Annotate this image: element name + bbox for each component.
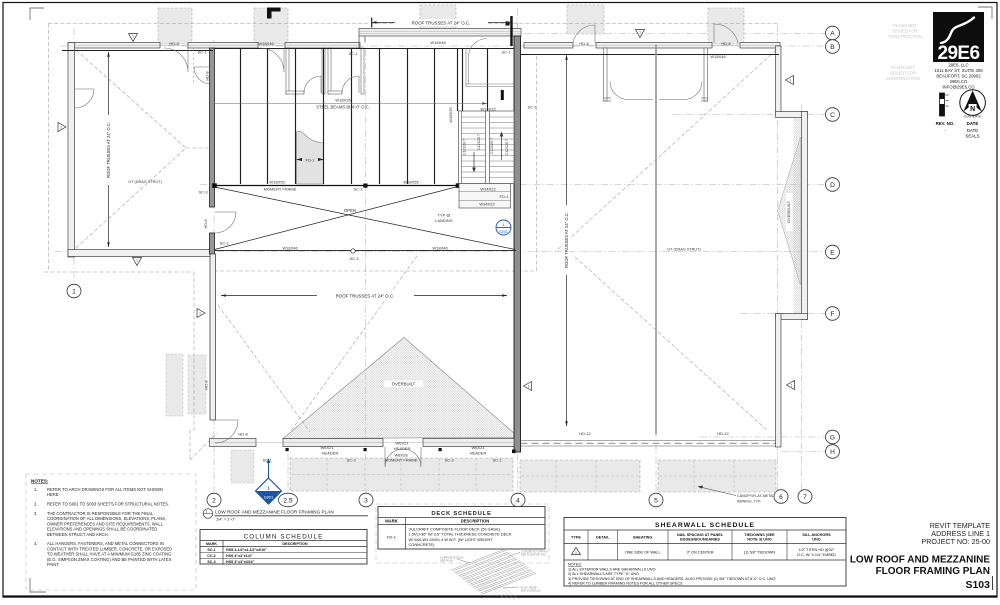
svg-text:SC-3: SC-3: [198, 190, 208, 195]
svg-text:S201: S201: [499, 230, 507, 234]
svg-text:HD-8: HD-8: [204, 380, 209, 390]
svg-text:W18X46: W18X46: [710, 54, 726, 59]
svg-text:B: B: [830, 44, 835, 51]
svg-text:HD-8: HD-8: [205, 71, 210, 81]
svg-text:SC-1: SC-1: [197, 50, 207, 55]
svg-text:LOW ROOF AND MEZZANINE FLOOR F: LOW ROOF AND MEZZANINE FLOOR FRAMING PLA…: [215, 510, 334, 515]
svg-text:ISSUED FOR: ISSUED FOR: [892, 29, 918, 34]
svg-text:C12X20.7: C12X20.7: [505, 139, 509, 155]
svg-text:DETAIL: DETAIL: [596, 536, 610, 540]
svg-text:1: 1: [132, 35, 134, 39]
svg-text:UNO: UNO: [812, 538, 820, 542]
svg-text:S301: S301: [264, 495, 274, 500]
svg-text:1: 1: [199, 311, 201, 315]
svg-text:CONNCRETE): CONNCRETE): [409, 542, 436, 547]
svg-text:ROOF TRUSSES AT 24" O.C.: ROOF TRUSSES AT 24" O.C.: [412, 21, 471, 26]
svg-text:E: E: [830, 249, 835, 256]
svg-text:DATE: DATE: [967, 128, 978, 133]
svg-text:LOW ROOF AND MEZZANINE: LOW ROOF AND MEZZANINE: [850, 555, 991, 566]
svg-text:SC-1: SC-1: [207, 548, 215, 552]
svg-text:SEALS: SEALS: [965, 134, 979, 139]
svg-text:1011 BAY ST, SUITE 306: 1011 BAY ST, SUITE 306: [934, 68, 983, 73]
svg-text:PAINT.: PAINT.: [47, 562, 60, 567]
svg-text:C12X20.7: C12X20.7: [490, 138, 494, 154]
svg-text:2.5: 2.5: [283, 497, 292, 504]
svg-text:FD-1: FD-1: [387, 535, 397, 540]
svg-text:MOMENT FRAME: MOMENT FRAME: [264, 187, 297, 192]
svg-text:1: 1: [528, 384, 530, 388]
svg-text:COLUMN SCHEDULE: COLUMN SCHEDULE: [244, 533, 324, 540]
svg-text:1) ALL EXTERIOR WALLS ARE SHEA: 1) ALL EXTERIOR WALLS ARE SHEARWALLS UNO: [568, 567, 656, 571]
svg-text:INFO@29E6.CO: INFO@29E6.CO: [942, 85, 975, 90]
svg-text:SC-1: SC-1: [501, 50, 511, 55]
svg-text:HEADER: HEADER: [394, 446, 411, 451]
svg-text:1: 1: [639, 31, 641, 35]
svg-text:CANOPY/FLAT-METAL: CANOPY/FLAT-METAL: [737, 494, 774, 498]
svg-text:OVERBUILT: OVERBUILT: [392, 382, 416, 387]
svg-text:3) PROVIDE TIEDOWNS AT END OF: 3) PROVIDE TIEDOWNS AT END OF SHEARWALLS…: [568, 577, 776, 581]
svg-text:W18X46: W18X46: [282, 245, 298, 250]
svg-text:NAIL SPACING AT PANEL: NAIL SPACING AT PANEL: [677, 533, 724, 537]
svg-text:ISSUED FOR: ISSUED FOR: [890, 71, 916, 76]
svg-text:1: 1: [791, 383, 793, 387]
svg-text:GT (DRAG STRUT): GT (DRAG STRUT): [128, 180, 162, 184]
svg-text:TIEDOWNS (SEE: TIEDOWNS (SEE: [744, 533, 775, 537]
svg-text:HEADER: HEADER: [470, 451, 487, 456]
svg-text:SC-1: SC-1: [527, 105, 537, 110]
svg-text:ONE SIDE OF WALL: ONE SIDE OF WALL: [625, 551, 661, 555]
svg-text:EDGES/BOUNDARIES: EDGES/BOUNDARIES: [680, 538, 720, 542]
svg-text:6: 6: [779, 494, 783, 501]
svg-text:W18X46: W18X46: [432, 245, 448, 250]
svg-text:SC-2: SC-2: [353, 187, 363, 192]
svg-text:TYPE: TYPE: [571, 536, 581, 540]
svg-text:W14X22: W14X22: [480, 187, 496, 192]
svg-text:ROOF TRUSSES AT 24" O.C.: ROOF TRUSSES AT 24" O.C.: [564, 212, 569, 268]
svg-text:FD-1: FD-1: [306, 157, 316, 162]
svg-text:W18X35: W18X35: [335, 98, 351, 103]
svg-text:PLANS NOT: PLANS NOT: [893, 23, 917, 28]
svg-text:HERE.: HERE.: [47, 492, 60, 497]
svg-text:DESCRIPTION: DESCRIPTION: [461, 519, 490, 524]
svg-text:W18X46: W18X46: [258, 41, 274, 46]
svg-text:D: D: [830, 182, 835, 189]
svg-text:TYP @: TYP @: [438, 213, 451, 218]
svg-text:REFER TO ARCH DRAWINGS FOR ALL: REFER TO ARCH DRAWINGS FOR ALL ITEMS NOT…: [47, 487, 163, 492]
svg-text:PLAN NORTH: PLAN NORTH: [964, 115, 981, 119]
svg-text:HSS 3"x3"x3/16": HSS 3"x3"x3/16": [226, 560, 255, 564]
svg-text:DATE: DATE: [967, 121, 979, 126]
svg-text:AWNING, TYP.: AWNING, TYP.: [737, 499, 761, 503]
svg-text:H: H: [830, 449, 835, 456]
svg-text:BETWEEN STRUCT AND ARCH.: BETWEEN STRUCT AND ARCH.: [47, 532, 109, 537]
svg-text:FLOOR FRAMING PLAN: FLOOR FRAMING PLAN: [876, 566, 990, 577]
svg-text:CONSTRUCTION: CONSTRUCTION: [886, 76, 920, 81]
svg-text:HD-8: HD-8: [169, 41, 179, 46]
svg-text:O.C. W/ 3-1/4" EMBED: O.C. W/ 3-1/4" EMBED: [797, 553, 836, 557]
svg-text:C: C: [830, 112, 835, 119]
svg-text:NOTES:: NOTES:: [31, 479, 49, 484]
svg-text:1/4" = 1'-0": 1/4" = 1'-0": [216, 517, 236, 522]
svg-text:2: 2: [212, 497, 216, 504]
svg-text:1: 1: [72, 288, 76, 295]
svg-text:2.: 2.: [34, 502, 37, 507]
svg-text:HD-8: HD-8: [721, 41, 731, 46]
svg-text:5: 5: [654, 497, 658, 504]
svg-text:29E6.CO: 29E6.CO: [950, 79, 968, 84]
svg-text:REFER TO S001 TO S003 SHEETS F: REFER TO S001 TO S003 SHEETS FOR STRUCTU…: [47, 502, 169, 507]
svg-text:BEAUFORT, SC 29902: BEAUFORT, SC 29902: [936, 74, 981, 79]
svg-text:DESCRIPTION: DESCRIPTION: [282, 542, 308, 546]
svg-text:3.: 3.: [34, 511, 37, 516]
svg-text:SC-3: SC-3: [346, 458, 356, 463]
svg-text:W18X55: W18X55: [403, 179, 419, 184]
svg-text:SC-3: SC-3: [444, 458, 454, 463]
svg-text:1: 1: [790, 78, 792, 82]
svg-text:W14X22: W14X22: [479, 202, 495, 207]
svg-text:3" ON CENTER: 3" ON CENTER: [687, 551, 714, 555]
svg-text:LANDING: LANDING: [435, 218, 453, 223]
svg-text:SC-3: SC-3: [207, 560, 215, 564]
svg-text:(1) 5/8" TIEDOWN: (1) 5/8" TIEDOWN: [744, 551, 775, 555]
svg-text:HD-8: HD-8: [579, 41, 589, 46]
svg-text:SEE PLAN FOR THK: SEE PLAN FOR THK: [521, 552, 546, 556]
svg-text:W6X21: W6X21: [320, 445, 334, 450]
svg-text:SEE PLAN: SEE PLAN: [440, 558, 453, 562]
svg-text:HD-8: HD-8: [238, 432, 248, 437]
svg-text:1: 1: [206, 510, 208, 514]
svg-text:OPEN: OPEN: [344, 208, 356, 213]
svg-text:GT (DRAG STRUT): GT (DRAG STRUT): [667, 248, 701, 252]
svg-text:FD-1: FD-1: [500, 194, 510, 199]
svg-text:HD-12: HD-12: [579, 431, 591, 436]
svg-text:SC-1: SC-1: [492, 458, 502, 463]
svg-text:G: G: [830, 434, 835, 441]
svg-text:1: 1: [136, 259, 138, 263]
svg-text:W18X55: W18X55: [269, 179, 285, 184]
svg-text:SC-1: SC-1: [348, 51, 358, 56]
svg-text:C12X20.7: C12X20.7: [463, 139, 467, 155]
svg-text:W18X35: W18X35: [448, 107, 453, 123]
svg-text:4: 4: [516, 497, 520, 504]
svg-text:STEEL BEAMS @ 4'-0" O.C.: STEEL BEAMS @ 4'-0" O.C.: [316, 105, 370, 110]
svg-text:W6X21: W6X21: [471, 445, 485, 450]
svg-text:29E6: 29E6: [938, 43, 980, 64]
svg-text:N: N: [970, 106, 975, 113]
svg-text:3: 3: [364, 497, 368, 504]
svg-text:1: 1: [60, 125, 62, 129]
svg-text:CC-2: CC-2: [207, 554, 215, 558]
svg-text:SEE SCHEDULE: SEE SCHEDULE: [521, 588, 541, 592]
svg-text:MARK: MARK: [206, 542, 217, 546]
svg-text:PROJECT NO: 25-00: PROJECT NO: 25-00: [921, 537, 990, 546]
svg-text:HSS 4-1/2"x4-1/2"x3/16": HSS 4-1/2"x4-1/2"x3/16": [226, 548, 267, 552]
svg-text:A: A: [830, 30, 835, 37]
svg-text:CONSTRUCTION: CONSTRUCTION: [888, 34, 922, 39]
svg-text:1/2" TITEN HD @32": 1/2" TITEN HD @32": [799, 548, 835, 552]
svg-text:HD-8: HD-8: [203, 219, 208, 229]
svg-text:4.: 4.: [34, 541, 37, 546]
svg-text:HEADER: HEADER: [322, 451, 339, 456]
svg-text:SILL ANCHORS: SILL ANCHORS: [802, 533, 831, 537]
svg-text:W14X22: W14X22: [480, 107, 496, 112]
svg-text:C12X20.7: C12X20.7: [477, 134, 481, 150]
svg-text:MOMENT FRAME: MOMENT FRAME: [385, 457, 418, 462]
svg-text:HD-12: HD-12: [717, 431, 729, 436]
svg-text:2) ALL SHEARWALLS ARE TYPE "A": 2) ALL SHEARWALLS ARE TYPE "A" UNO: [568, 572, 639, 576]
svg-text:MARK: MARK: [385, 519, 398, 524]
svg-text:29E6, LLC: 29E6, LLC: [948, 63, 968, 68]
svg-text:ROOF TRUSSES AT 24" O.C.: ROOF TRUSSES AT 24" O.C.: [336, 294, 395, 299]
svg-text:SC-1: SC-1: [349, 256, 359, 261]
svg-text:DECK SCHEDULE: DECK SCHEDULE: [431, 511, 491, 517]
svg-text:SHEARWALL SCHEDULE: SHEARWALL SCHEDULE: [655, 522, 755, 529]
svg-text:NOTE 3) UNO: NOTE 3) UNO: [747, 538, 772, 542]
svg-text:F: F: [830, 311, 834, 318]
svg-text:PLANS NOT: PLANS NOT: [891, 65, 915, 70]
svg-text:ROOF TRUSSES AT 24" O.C.: ROOF TRUSSES AT 24" O.C.: [106, 122, 111, 178]
svg-text:W18X46: W18X46: [430, 40, 446, 45]
svg-text:S103: S103: [965, 579, 990, 591]
svg-text:REV. NO.: REV. NO.: [936, 121, 955, 126]
svg-text:7: 7: [803, 494, 807, 501]
svg-text:(E.G. SIMPSON ZMAX COATING) AN: (E.G. SIMPSON ZMAX COATING) AND BE PAINT…: [47, 557, 172, 562]
svg-text:OVERBUILT: OVERBUILT: [786, 200, 791, 223]
svg-text:SC-1: SC-1: [219, 241, 229, 246]
svg-text:HSS 4"x4"x1/4": HSS 4"x4"x1/4": [226, 554, 253, 558]
svg-text:1.: 1.: [34, 487, 37, 492]
svg-text:SHEATING: SHEATING: [633, 536, 652, 540]
svg-text:NOTES:: NOTES:: [568, 563, 582, 567]
svg-text:4) REFER TO LUMBER FRAMING NOT: 4) REFER TO LUMBER FRAMING NOTES FOR ALL…: [568, 582, 683, 586]
